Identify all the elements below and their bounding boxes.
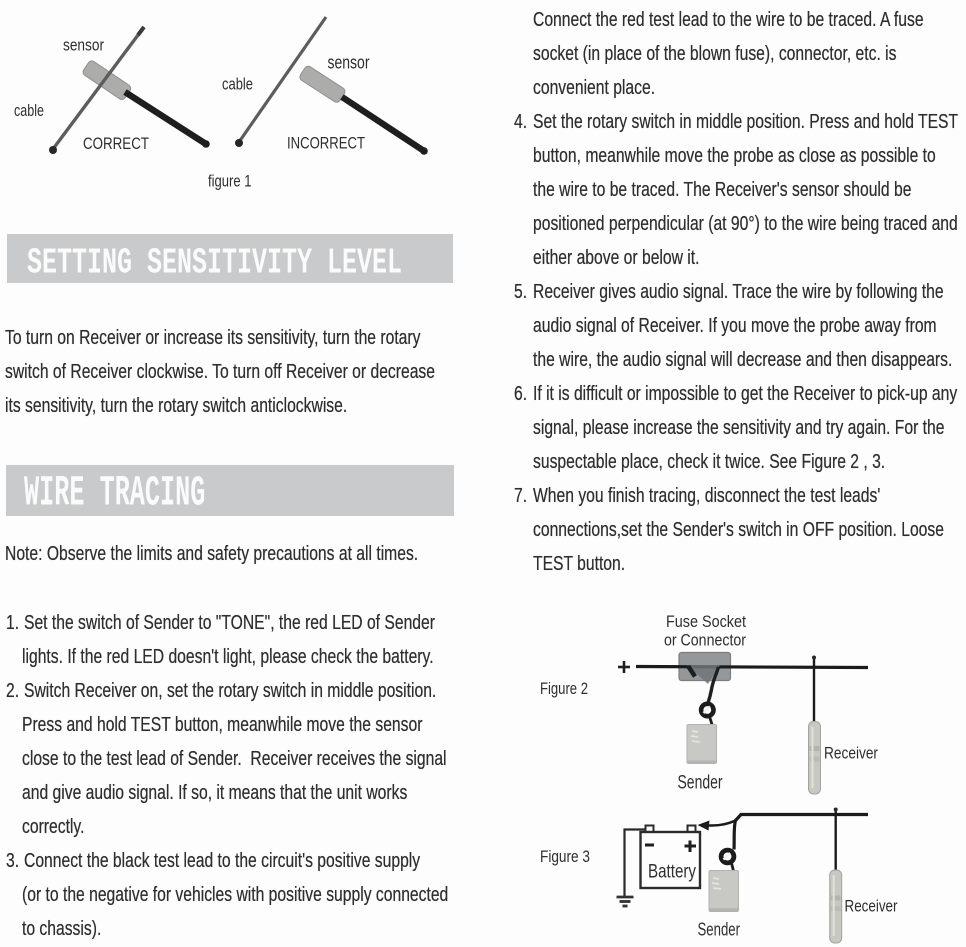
svg-text:Receiver: Receiver — [824, 744, 878, 763]
svg-text:Sender: Sender — [698, 919, 741, 940]
svg-text:Figure 3: Figure 3 — [540, 847, 590, 866]
svg-text:Figure 2: Figure 2 — [540, 679, 588, 698]
svg-text:sensor: sensor — [63, 36, 104, 55]
svg-text:sensor: sensor — [328, 53, 370, 73]
svg-text:Fuse Socket: Fuse Socket — [666, 612, 746, 631]
svg-text:Sender: Sender — [678, 772, 723, 794]
svg-text:CORRECT: CORRECT — [83, 134, 149, 153]
svg-text:Battery: Battery — [648, 862, 696, 883]
svg-text:or Connector: or Connector — [664, 631, 746, 650]
svg-text:INCORRECT: INCORRECT — [287, 134, 365, 153]
svg-text:Receiver: Receiver — [845, 897, 898, 916]
svg-text:figure 1: figure 1 — [208, 173, 252, 191]
svg-text:cable: cable — [222, 75, 253, 94]
svg-text:cable: cable — [14, 101, 44, 120]
